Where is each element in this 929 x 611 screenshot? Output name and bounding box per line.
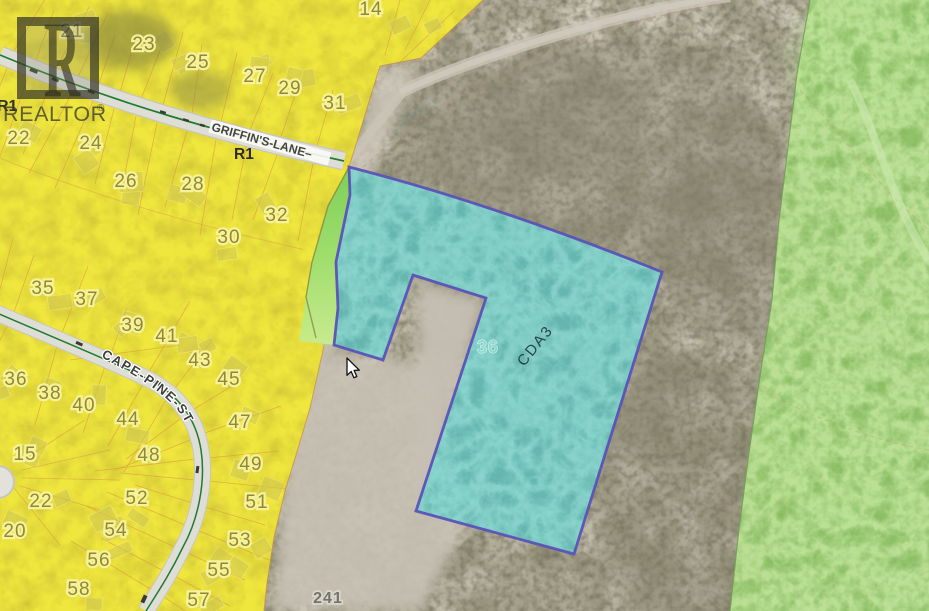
svg-text:44: 44 (116, 409, 139, 430)
svg-text:R1: R1 (234, 146, 254, 163)
svg-text:27: 27 (243, 66, 266, 87)
svg-text:39: 39 (121, 315, 144, 336)
svg-text:26: 26 (114, 171, 137, 192)
svg-text:57: 57 (187, 590, 210, 611)
svg-text:32: 32 (265, 205, 288, 226)
svg-text:41: 41 (155, 326, 178, 347)
svg-text:31: 31 (323, 93, 346, 114)
svg-text:45: 45 (217, 369, 240, 390)
svg-text:55: 55 (207, 560, 230, 581)
svg-text:52: 52 (125, 488, 148, 509)
svg-text:29: 29 (278, 78, 301, 99)
svg-text:25: 25 (186, 52, 209, 73)
svg-text:20: 20 (3, 521, 26, 542)
svg-text:40: 40 (72, 395, 95, 416)
svg-text:23: 23 (132, 34, 155, 55)
svg-text:56: 56 (87, 550, 110, 571)
svg-text:38: 38 (38, 383, 61, 404)
svg-text:53: 53 (228, 530, 251, 551)
svg-text:28: 28 (181, 174, 204, 195)
svg-text:37: 37 (75, 289, 98, 310)
svg-text:241: 241 (313, 590, 343, 607)
svg-text:REALTOR: REALTOR (3, 102, 107, 126)
svg-text:30: 30 (217, 227, 240, 248)
svg-text:22: 22 (29, 491, 52, 512)
svg-text:54: 54 (104, 520, 127, 541)
svg-text:48: 48 (137, 445, 160, 466)
svg-text:47: 47 (228, 412, 251, 433)
svg-text:51: 51 (245, 492, 268, 513)
svg-text:36: 36 (4, 369, 27, 390)
svg-text:22: 22 (7, 128, 30, 149)
svg-text:®: ® (97, 103, 105, 114)
svg-text:58: 58 (67, 579, 90, 600)
svg-text:35: 35 (31, 278, 54, 299)
svg-text:14: 14 (359, 0, 382, 20)
svg-text:15: 15 (13, 444, 36, 465)
svg-text:49: 49 (239, 454, 262, 475)
svg-text:43: 43 (188, 350, 211, 371)
svg-text:24: 24 (79, 133, 102, 154)
svg-text:36: 36 (477, 337, 499, 357)
